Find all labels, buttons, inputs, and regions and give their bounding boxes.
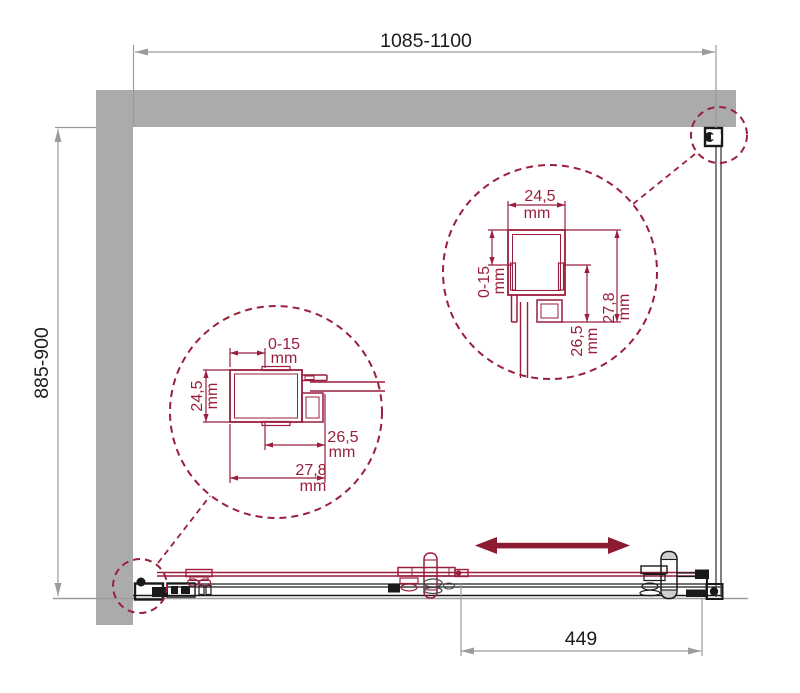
detail-right-depth-inner-unit: mm [584, 328, 601, 355]
technical-drawing: 1085-1100 885-900 449 [0, 0, 800, 693]
detail-left-dim-height: 24,5 mm [189, 370, 230, 422]
arrowhead-bottom [55, 583, 62, 596]
carriage-plate [398, 568, 455, 577]
corner-profile-top-right [705, 128, 723, 146]
wall-top [96, 90, 736, 127]
profile-screw [710, 587, 718, 595]
bracket-block-1 [171, 586, 178, 594]
dimension-left-label: 885-900 [31, 327, 53, 399]
arrow-head-left [475, 537, 497, 554]
arrowhead-left [135, 49, 148, 56]
arrowhead [230, 475, 238, 480]
glass-panel-right [716, 146, 721, 597]
arrow-head-right [608, 537, 630, 554]
channel-box-inner [541, 304, 558, 318]
arrowhead-left [461, 648, 474, 655]
detail-left-adjust-unit: mm [271, 350, 298, 367]
arrowhead [489, 257, 494, 265]
arrowhead-right [688, 648, 701, 655]
detail-left-height-unit: mm [204, 383, 221, 410]
rod-connector [695, 570, 709, 580]
detail-right-drawing: 24,5 mm 0-15 mm 26,5 mm [476, 188, 633, 378]
detail-markers [113, 107, 747, 613]
profile-slot [711, 135, 721, 140]
detail-leader-right [633, 154, 695, 204]
arrowhead [203, 370, 208, 378]
channel-clip [305, 376, 314, 380]
detail-right-dim-width: 24,5 mm [508, 188, 565, 230]
bracket-block-2 [181, 586, 190, 594]
arrowhead [584, 265, 589, 273]
connector-screw [456, 570, 462, 576]
dimension-bottom-label: 449 [565, 628, 598, 650]
profile-insert [686, 590, 708, 598]
detail-left-depth-inner-unit: mm [329, 444, 356, 461]
channel-box-inner [306, 397, 319, 418]
profile-inner-wall [513, 235, 561, 291]
arrowhead [557, 202, 565, 207]
stopper-block [388, 584, 400, 593]
dimension-left: 885-900 [31, 128, 96, 597]
profile-main-box [508, 230, 565, 295]
profile-inner-wall [235, 374, 298, 418]
detail-right-width-unit: mm [524, 205, 551, 222]
detail-left-depth-full-unit: mm [300, 478, 327, 495]
detail-leader-left [158, 496, 210, 563]
arrowhead [257, 350, 265, 355]
arrowhead [230, 350, 238, 355]
sliding-direction-arrow-icon [475, 537, 630, 554]
carriage-mount [400, 578, 418, 584]
arrowhead-top [55, 129, 62, 142]
arrowhead [489, 230, 494, 238]
arrowhead-right [702, 49, 715, 56]
detail-right-dim-depth-full: 27,8 mm [560, 230, 633, 324]
arrowhead [614, 230, 619, 238]
knob-cap-bottom [662, 590, 676, 598]
arrowhead [508, 202, 516, 207]
profile-screw [137, 578, 146, 587]
arrowhead [584, 314, 589, 322]
arrowhead [265, 442, 273, 447]
detail-right-adjust-unit: mm [491, 268, 508, 295]
profile-main-box [230, 370, 302, 422]
arrowhead [317, 442, 325, 447]
wall-left [96, 90, 133, 625]
detail-right-depth-full-unit: mm [616, 294, 633, 321]
detail-left-dim-depth-full: 27,8 mm [230, 424, 327, 495]
detail-left-drawing: 0-15 mm 24,5 mm 26,5 mm [189, 336, 385, 495]
guide-wheel-1 [424, 579, 442, 587]
dimension-top-label: 1085-1100 [380, 30, 472, 52]
detail-right-dim-depth-inner: 26,5 mm [563, 265, 601, 357]
detail-right-width-value: 24,5 [524, 188, 555, 205]
detail-right-dim-adjust: 0-15 mm [476, 230, 512, 298]
detail-left-dim-adjust: 0-15 mm [230, 336, 300, 368]
arrow-shaft [495, 543, 610, 549]
walls [96, 90, 736, 625]
arrowhead [203, 414, 208, 422]
detail-left-depth-full-value: 27,8 [295, 462, 326, 479]
